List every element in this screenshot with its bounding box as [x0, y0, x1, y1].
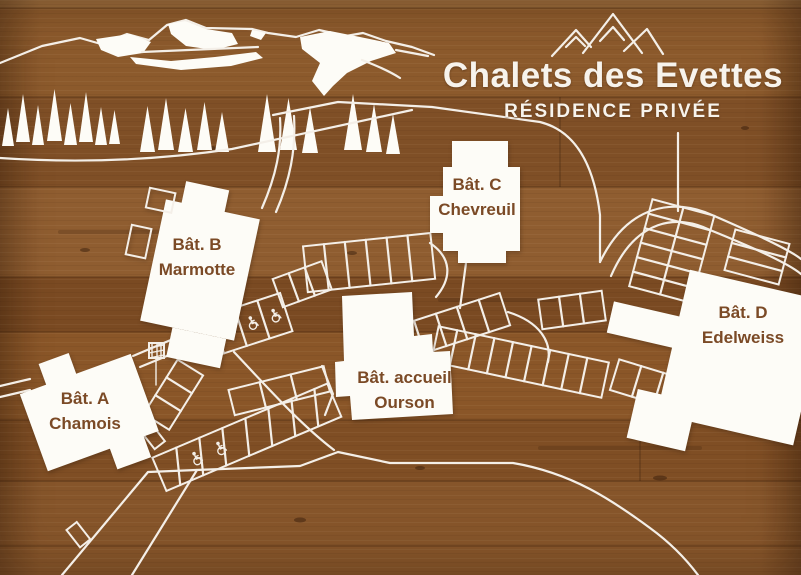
- pine-trees: [2, 89, 400, 154]
- wooden-site-map-board: Chalets des Evettes RÉSIDENCE PRIVÉE Bât…: [0, 0, 801, 575]
- building-accueil-ourson-shape: [335, 292, 453, 420]
- parking-row-central-long: [431, 326, 609, 397]
- wheelchair-icon: [269, 307, 281, 323]
- building-b-marmotte-shape: [107, 172, 265, 370]
- mountain-range: [0, 20, 434, 96]
- wheelchair-icon: [247, 315, 259, 331]
- building-c-chevreuil-shape: [430, 141, 520, 263]
- parking-row-accessible-south: [152, 384, 341, 491]
- site-map-graphics: [0, 0, 801, 575]
- parking-row-center-small: [538, 291, 606, 330]
- road-crossing-marker: [66, 522, 90, 547]
- mountain-logo-icon: [552, 14, 663, 56]
- building-a-chamois-shape: [12, 333, 166, 492]
- snow-patches: [96, 21, 396, 96]
